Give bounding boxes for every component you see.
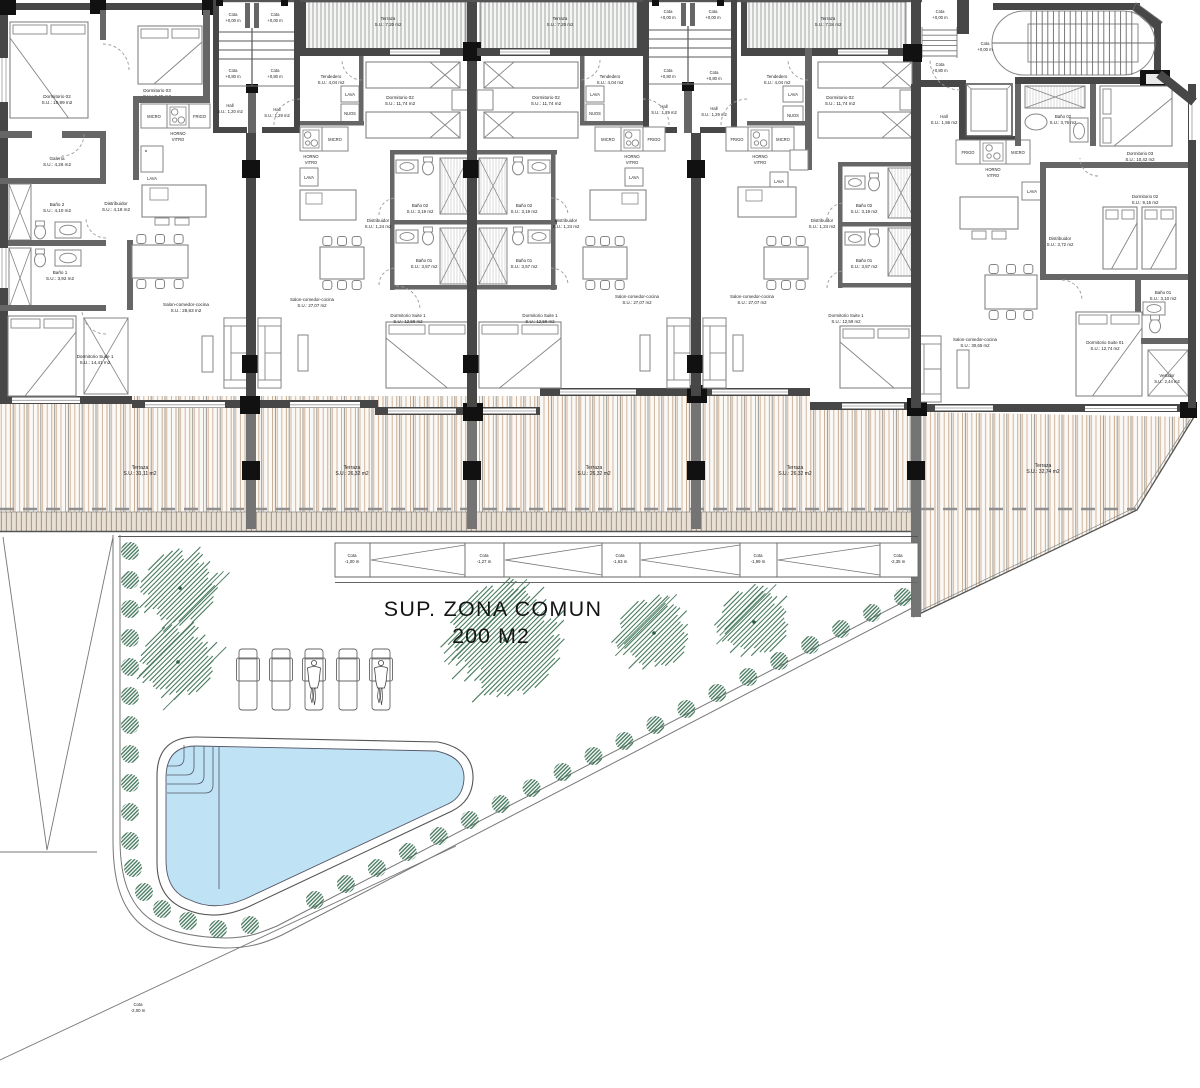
svg-text:Baño 02: Baño 02 [412,203,429,208]
svg-text:S.U.: 26,32 m2: S.U.: 26,32 m2 [778,471,812,477]
svg-text:Cota: Cota [615,553,625,558]
svg-text:Cota: Cota [936,62,946,67]
svg-text:S.U.: 3,76 m2: S.U.: 3,76 m2 [1050,120,1077,125]
svg-text:VITRO: VITRO [754,160,767,165]
svg-text:-1,99 m: -1,99 m [751,559,766,564]
svg-text:Baño 02: Baño 02 [856,203,873,208]
svg-text:HORNO: HORNO [752,154,767,159]
svg-text:S.U.: 4,10 m2: S.U.: 4,10 m2 [43,208,72,213]
svg-text:Distribuidor: Distribuidor [811,218,834,223]
svg-text:Cota: Cota [709,9,719,14]
svg-text:-2,35 m: -2,35 m [891,559,906,564]
svg-text:S.U.: 4,26 m2: S.U.: 4,26 m2 [43,162,72,167]
svg-text:S.U.: 30,65 m2: S.U.: 30,65 m2 [960,343,990,348]
svg-text:VITRO: VITRO [305,160,318,165]
svg-text:S.U.: 4,04 m2: S.U.: 4,04 m2 [764,80,791,85]
svg-text:S.U.: 26,32 m2: S.U.: 26,32 m2 [577,471,611,477]
svg-text:Baño 02: Baño 02 [516,203,533,208]
svg-text:FRIGO: FRIGO [731,137,744,142]
svg-text:+0,80 m: +0,80 m [706,76,722,81]
svg-text:+0,00 m: +0,00 m [932,15,948,20]
svg-text:Distribuidor: Distribuidor [1049,236,1072,241]
svg-text:LAVA: LAVA [629,175,639,180]
svg-text:Distribuidor: Distribuidor [367,218,390,223]
svg-text:Cota: Cota [710,70,720,75]
svg-text:Baño 01: Baño 01 [516,258,533,263]
svg-text:+0,80 m: +0,80 m [225,74,241,79]
svg-text:Dormitorio Suite 01: Dormitorio Suite 01 [1086,340,1124,345]
svg-text:Tendedero: Tendedero [321,74,342,79]
svg-text:LAVA: LAVA [774,179,784,184]
svg-text:S.U.: 2,44 m2: S.U.: 2,44 m2 [1154,379,1180,384]
svg-text:S.U.: 7,20 m2: S.U.: 7,20 m2 [547,22,574,27]
svg-text:Cota: Cota [981,41,991,46]
svg-text:S.U.: 1,24 m2: S.U.: 1,24 m2 [809,224,836,229]
svg-text:-2,00 m: -2,00 m [131,1008,146,1013]
svg-text:Cota: Cota [229,12,239,17]
svg-text:Terraza: Terraza [381,16,396,21]
svg-text:Cota: Cota [753,553,763,558]
svg-text:Salon-comedor-cocina: Salon-comedor-cocina [290,297,334,302]
svg-text:S.U.: 3,10 m2: S.U.: 3,10 m2 [1150,296,1177,301]
svg-text:Cota: Cota [936,9,946,14]
svg-text:VITRO: VITRO [172,137,185,142]
svg-text:Terraza: Terraza [553,16,568,21]
svg-text:Dormitorio 02: Dormitorio 02 [386,95,414,100]
svg-text:Baño 01: Baño 01 [856,258,873,263]
svg-text:S.U.: 3,19 m2: S.U.: 3,19 m2 [851,209,878,214]
svg-text:NUOS: NUOS [787,113,799,118]
svg-text:Cota: Cota [271,68,281,73]
svg-text:Hall: Hall [660,104,667,109]
svg-text:LAVA: LAVA [345,92,355,97]
svg-text:Distribuidor: Distribuidor [104,201,128,206]
svg-text:Hall: Hall [710,106,717,111]
svg-text:S.U.: 11,74 m2: S.U.: 11,74 m2 [531,101,562,106]
svg-text:Salon-comedor-cocina: Salon-comedor-cocina [163,302,209,307]
svg-text:Baño 01: Baño 01 [1155,290,1172,295]
svg-text:S.U.: 10,42 m2: S.U.: 10,42 m2 [1125,157,1155,162]
svg-text:Vestidor: Vestidor [1159,373,1175,378]
svg-text:S.U.: 1,20 m2: S.U.: 1,20 m2 [217,109,243,114]
svg-text:Dormitorio 03: Dormitorio 03 [1127,151,1154,156]
svg-text:S.U.: 12,74 m2: S.U.: 12,74 m2 [1090,346,1120,351]
svg-text:S.U.: 11,74 m2: S.U.: 11,74 m2 [385,101,416,106]
svg-text:MICRO: MICRO [601,137,615,142]
svg-text:Dormitorio 02: Dormitorio 02 [532,95,560,100]
svg-text:LAVA: LAVA [147,176,157,181]
svg-text:LAVA: LAVA [304,175,314,180]
svg-text:SUP. ZONA COMUN: SUP. ZONA COMUN [384,597,603,621]
svg-text:HORNO: HORNO [303,154,318,159]
svg-text:Distribuidor: Distribuidor [555,218,578,223]
svg-text:S.U.: 10,99 m2: S.U.: 10,99 m2 [42,100,73,105]
svg-text:200 M2: 200 M2 [452,624,530,648]
svg-text:S.U.: 4,18 m2: S.U.: 4,18 m2 [102,207,131,212]
svg-text:Baño 1: Baño 1 [53,270,68,275]
svg-text:S.U.: 12,59 m2: S.U.: 12,59 m2 [525,319,555,324]
svg-text:HORNO: HORNO [985,167,1000,172]
svg-text:+0,00 m: +0,00 m [267,18,283,23]
svg-text:S.U.: 7,34 m2: S.U.: 7,34 m2 [815,22,842,27]
svg-text:S.U.: 12,59 m2: S.U.: 12,59 m2 [393,319,423,324]
svg-text:Tendedero: Tendedero [767,74,788,79]
svg-text:S.U.: 9,15 m2: S.U.: 9,15 m2 [1132,200,1159,205]
svg-text:+0,00 m: +0,00 m [660,15,676,20]
svg-text:Baño 01: Baño 01 [416,258,433,263]
svg-text:Dormitorio Suite 1: Dormitorio Suite 1 [828,313,864,318]
svg-text:HORNO: HORNO [624,154,639,159]
svg-text:-1,27 m: -1,27 m [477,559,492,564]
svg-text:S.U.: 27,07 m2: S.U.: 27,07 m2 [622,300,652,305]
svg-text:S.U.: 27,07 m2: S.U.: 27,07 m2 [737,300,767,305]
svg-text:Baño 02: Baño 02 [1055,114,1072,119]
svg-text:S.U.: 7,20 m2: S.U.: 7,20 m2 [375,22,402,27]
svg-text:Tendedero: Tendedero [600,74,621,79]
svg-text:Dormitorio Suite 1: Dormitorio Suite 1 [522,313,558,318]
svg-text:Dormitorio 02: Dormitorio 02 [1132,194,1159,199]
svg-text:S.U.: 1,29 m2: S.U.: 1,29 m2 [264,113,290,118]
svg-text:MICRO: MICRO [147,114,161,119]
svg-text:Galería: Galería [49,156,65,161]
svg-text:LAVA: LAVA [1027,189,1037,194]
svg-text:VITRO: VITRO [987,173,1000,178]
svg-text:FRIGO: FRIGO [962,150,975,155]
svg-text:S.U.: 27,07 m2: S.U.: 27,07 m2 [297,303,327,308]
svg-text:FRIGO: FRIGO [193,114,206,119]
svg-text:S.U.: 3,57 m2: S.U.: 3,57 m2 [411,264,438,269]
svg-text:S.U.: 4,04 m2: S.U.: 4,04 m2 [318,80,345,85]
svg-text:S.U.: 3,19 m2: S.U.: 3,19 m2 [511,209,538,214]
svg-text:LAVA: LAVA [788,92,798,97]
svg-text:Dormitorio Suite 1: Dormitorio Suite 1 [390,313,426,318]
svg-text:Cota: Cota [271,12,281,17]
svg-text:Cota: Cota [664,9,674,14]
svg-text:MICRO: MICRO [328,137,342,142]
svg-text:S.U.: 3,72 m2: S.U.: 3,72 m2 [1047,242,1074,247]
svg-text:S.U.: 1,29 m2: S.U.: 1,29 m2 [651,110,677,115]
svg-text:+0,80 m: +0,80 m [267,74,283,79]
svg-text:Hall: Hall [940,114,948,119]
svg-text:Dormitorio 02: Dormitorio 02 [826,95,854,100]
svg-text:S.U.: 11,74 m2: S.U.: 11,74 m2 [825,101,856,106]
svg-text:S.U.: 3,57 m2: S.U.: 3,57 m2 [851,264,878,269]
svg-text:Cota: Cota [479,553,489,558]
svg-text:S.U.: 32,74 m2: S.U.: 32,74 m2 [1026,469,1060,475]
svg-text:S.U.: 31,11 m2: S.U.: 31,11 m2 [124,471,157,477]
svg-text:+0,00 m: +0,00 m [705,15,721,20]
svg-text:Cota: Cota [133,1002,143,1007]
svg-text:Salon-comedor-cocina: Salon-comedor-cocina [730,294,774,299]
svg-text:MICRO: MICRO [776,137,790,142]
svg-text:S.U.: 1,24 m2: S.U.: 1,24 m2 [365,224,392,229]
svg-text:S.U.: 3,19 m2: S.U.: 3,19 m2 [407,209,434,214]
svg-text:Cota: Cota [229,68,239,73]
svg-text:S.U.: 14,41 m2: S.U.: 14,41 m2 [80,360,111,365]
svg-text:S.U.: 1,24 m2: S.U.: 1,24 m2 [553,224,580,229]
svg-text:Salon-comedor-cocina: Salon-comedor-cocina [953,337,997,342]
svg-text:Terraza: Terraza [821,16,836,21]
svg-text:MICRO: MICRO [1011,150,1025,155]
svg-text:VITRO: VITRO [626,160,639,165]
svg-text:-1,00 m: -1,00 m [345,559,360,564]
svg-text:Dormitorio Suite 1: Dormitorio Suite 1 [77,354,114,359]
svg-text:S.U.: 12,59 m2: S.U.: 12,59 m2 [831,319,861,324]
svg-text:+0,00 m: +0,00 m [977,47,993,52]
svg-text:LAVA: LAVA [590,92,600,97]
svg-text:Salon-comedor-cocina: Salon-comedor-cocina [615,294,659,299]
svg-text:Cota: Cota [893,553,903,558]
svg-text:S.U.: 3,57 m2: S.U.: 3,57 m2 [511,264,538,269]
svg-text:NUOS: NUOS [344,111,356,116]
svg-text:+0,00 m: +0,00 m [225,18,241,23]
svg-text:NUOS: NUOS [589,111,601,116]
svg-text:S.U.: 26,32 m2: S.U.: 26,32 m2 [335,471,369,477]
svg-text:HORNO: HORNO [170,131,185,136]
svg-text:Cota: Cota [347,553,357,558]
svg-text:FRIGO: FRIGO [648,137,661,142]
svg-text:Dormitorio 02: Dormitorio 02 [43,94,71,99]
svg-text:S.U.: 1,56 m2: S.U.: 1,56 m2 [931,120,958,125]
svg-text:Cota: Cota [664,68,674,73]
svg-text:Dormitorio 03: Dormitorio 03 [143,88,171,93]
svg-text:+0,80 m: +0,80 m [932,68,948,73]
svg-text:Hall: Hall [226,103,233,108]
svg-text:-1,63 m: -1,63 m [613,559,628,564]
svg-text:Baño 2: Baño 2 [50,202,65,207]
svg-text:+0,80 m: +0,80 m [660,74,676,79]
svg-text:S.U.: 3,92 m2: S.U.: 3,92 m2 [46,276,75,281]
svg-text:S.U.: 28,83 m2: S.U.: 28,83 m2 [171,308,202,313]
svg-text:S.U.: 4,04 m2: S.U.: 4,04 m2 [597,80,624,85]
